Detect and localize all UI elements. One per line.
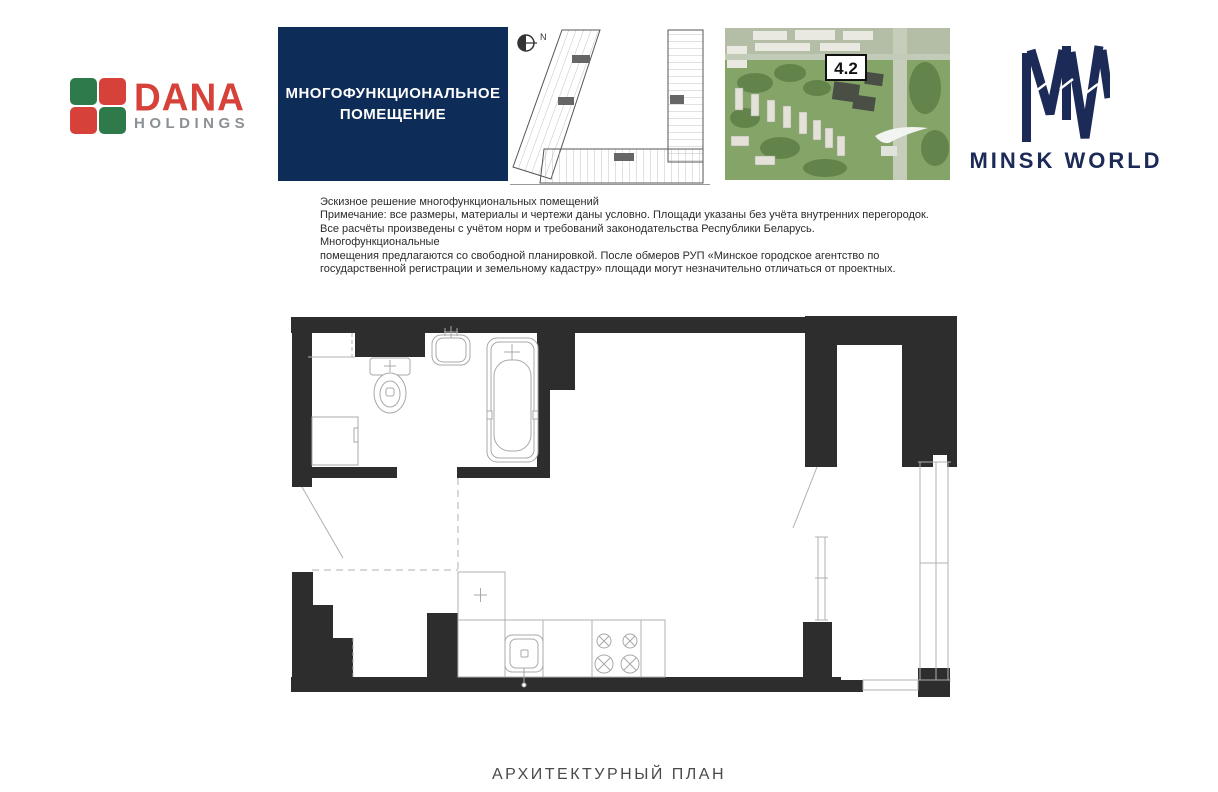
plan-fixtures — [312, 326, 639, 687]
title-box: МНОГОФУНКЦИОНАЛЬНОЕ ПОМЕЩЕНИЕ — [278, 27, 508, 181]
window-notch — [933, 455, 947, 467]
notes-line: Примечание: все размеры, материалы и чер… — [320, 209, 930, 222]
north-arrow-icon: N — [518, 32, 547, 51]
dana-square-green — [70, 78, 97, 105]
toilet-icon — [370, 358, 410, 413]
washing-machine-icon — [312, 417, 358, 465]
north-label: N — [540, 32, 547, 42]
notes-line: помещения предлагаются со свободной план… — [320, 250, 930, 263]
dana-holdings-logo: DANA HOLDINGS — [70, 76, 270, 136]
dana-square-green — [99, 107, 126, 134]
entrance-door-swing — [302, 487, 343, 558]
dana-wordmark: DANA — [134, 80, 249, 115]
dana-logo-text: DANA HOLDINGS — [134, 81, 249, 132]
dana-square-red — [99, 78, 126, 105]
block-label-text: 4.2 — [834, 59, 858, 78]
minsk-world-logo: MINSK WORLD — [976, 40, 1156, 175]
minsk-world-wordmark: MINSK WORLD — [969, 148, 1162, 174]
aerial-road-vertical — [893, 28, 907, 180]
notes-paragraph: Эскизное решение многофункциональных пом… — [320, 196, 930, 276]
key-plan-outline — [510, 30, 710, 185]
sheet-caption: АРХИТЕКТУРНЫЙ ПЛАН — [0, 766, 1218, 784]
brochure-sheet: DANA HOLDINGS МНОГОФУНКЦИОНАЛЬНОЕ ПОМЕЩЕ… — [0, 0, 1218, 792]
notes-line: Все расчёты произведены с учётом норм и … — [320, 223, 930, 250]
balcony-door-swing — [793, 467, 817, 528]
notes-line: Эскизное решение многофункциональных пом… — [320, 196, 930, 209]
loggia-glazing — [815, 537, 828, 620]
block-label: 4.2 — [826, 55, 866, 80]
bathtub-icon — [487, 338, 538, 462]
notes-line: государственной регистрации и земельному… — [320, 263, 930, 276]
floor-plan — [291, 316, 957, 700]
title-line-1: МНОГОФУНКЦИОНАЛЬНОЕ — [285, 83, 500, 104]
dana-square-red — [70, 107, 97, 134]
facade-windows — [863, 462, 951, 690]
title-line-2: ПОМЕЩЕНИЕ — [340, 104, 446, 125]
building-key-plan: N — [510, 27, 710, 185]
zone-cross-mark — [474, 588, 487, 602]
stove-icon — [595, 634, 639, 673]
aerial-render: 4.2 — [725, 28, 950, 180]
dana-squares-icon — [70, 78, 126, 134]
mw-monogram-icon — [1022, 40, 1110, 142]
